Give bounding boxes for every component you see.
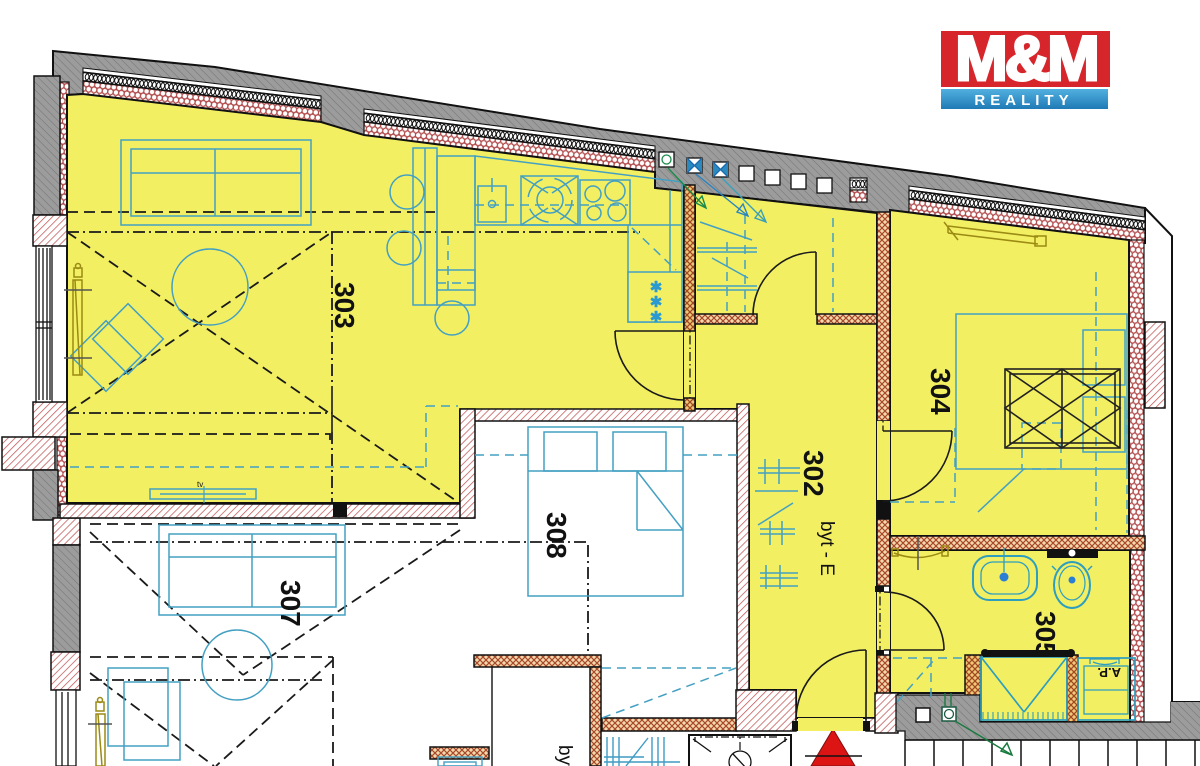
svg-text:M&M: M&M [955, 24, 1096, 94]
svg-text:305: 305 [1030, 611, 1061, 658]
svg-text:304: 304 [925, 368, 956, 415]
svg-text:302: 302 [798, 450, 829, 497]
svg-text:308: 308 [541, 512, 572, 559]
svg-text:byt - E: byt - E [816, 521, 837, 576]
svg-text:A.P.: A.P. [1097, 665, 1121, 680]
svg-text:303: 303 [329, 282, 360, 329]
svg-text:REALITY: REALITY [974, 92, 1073, 109]
svg-text:307: 307 [275, 580, 306, 627]
svg-text:tv: tv [197, 480, 203, 489]
svg-text:✱: ✱ [650, 309, 663, 326]
svg-text:byt - D: byt - D [554, 745, 575, 766]
